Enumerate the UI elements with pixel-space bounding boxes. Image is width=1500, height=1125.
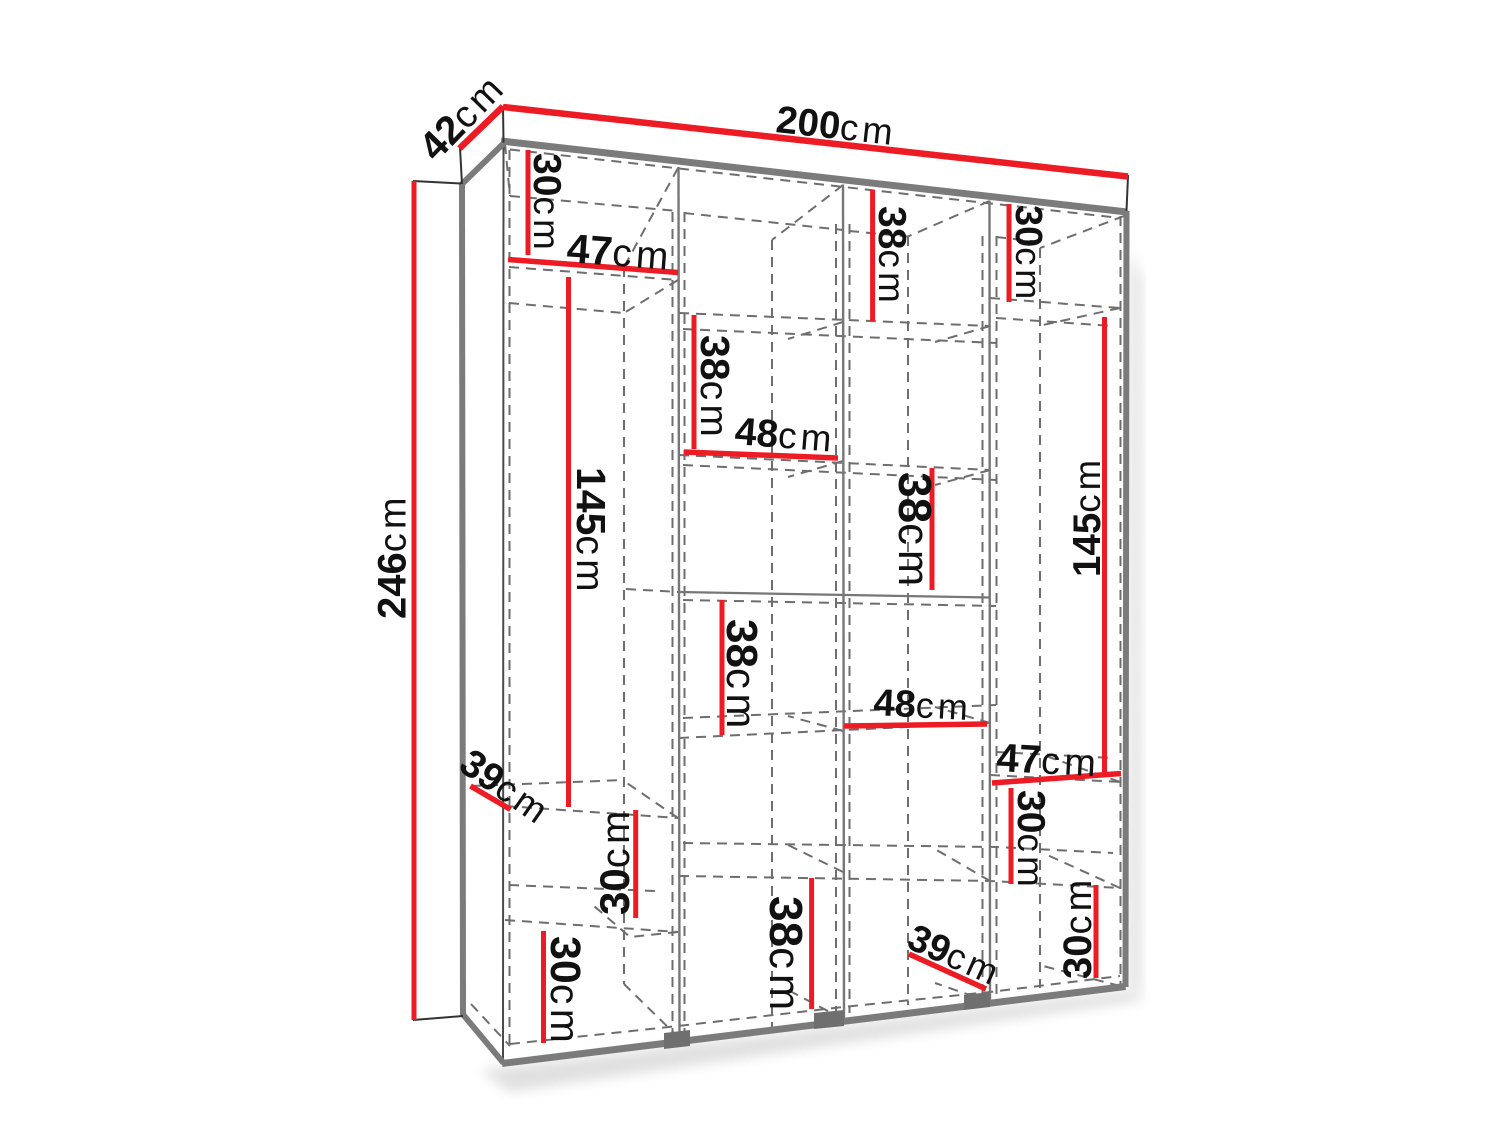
svg-text:38cm: 38cm xyxy=(717,619,766,733)
svg-text:38cm: 38cm xyxy=(870,206,913,307)
svg-text:30cm: 30cm xyxy=(591,806,638,915)
svg-text:30cm: 30cm xyxy=(1007,205,1049,303)
svg-text:38cm: 38cm xyxy=(760,896,812,1015)
svg-text:30cm: 30cm xyxy=(1056,875,1100,979)
svg-text:38cm: 38cm xyxy=(889,472,941,591)
svg-text:30cm: 30cm xyxy=(525,153,568,254)
svg-text:48cm: 48cm xyxy=(733,410,837,461)
svg-text:145cm: 145cm xyxy=(568,467,614,596)
svg-text:47cm: 47cm xyxy=(996,736,1102,785)
svg-text:48cm: 48cm xyxy=(873,682,973,729)
svg-text:246cm: 246cm xyxy=(371,493,415,619)
svg-text:30cm: 30cm xyxy=(541,936,589,1047)
svg-text:30cm: 30cm xyxy=(1009,790,1052,891)
svg-text:145cm: 145cm xyxy=(1066,456,1109,577)
svg-text:38cm: 38cm xyxy=(692,335,738,441)
